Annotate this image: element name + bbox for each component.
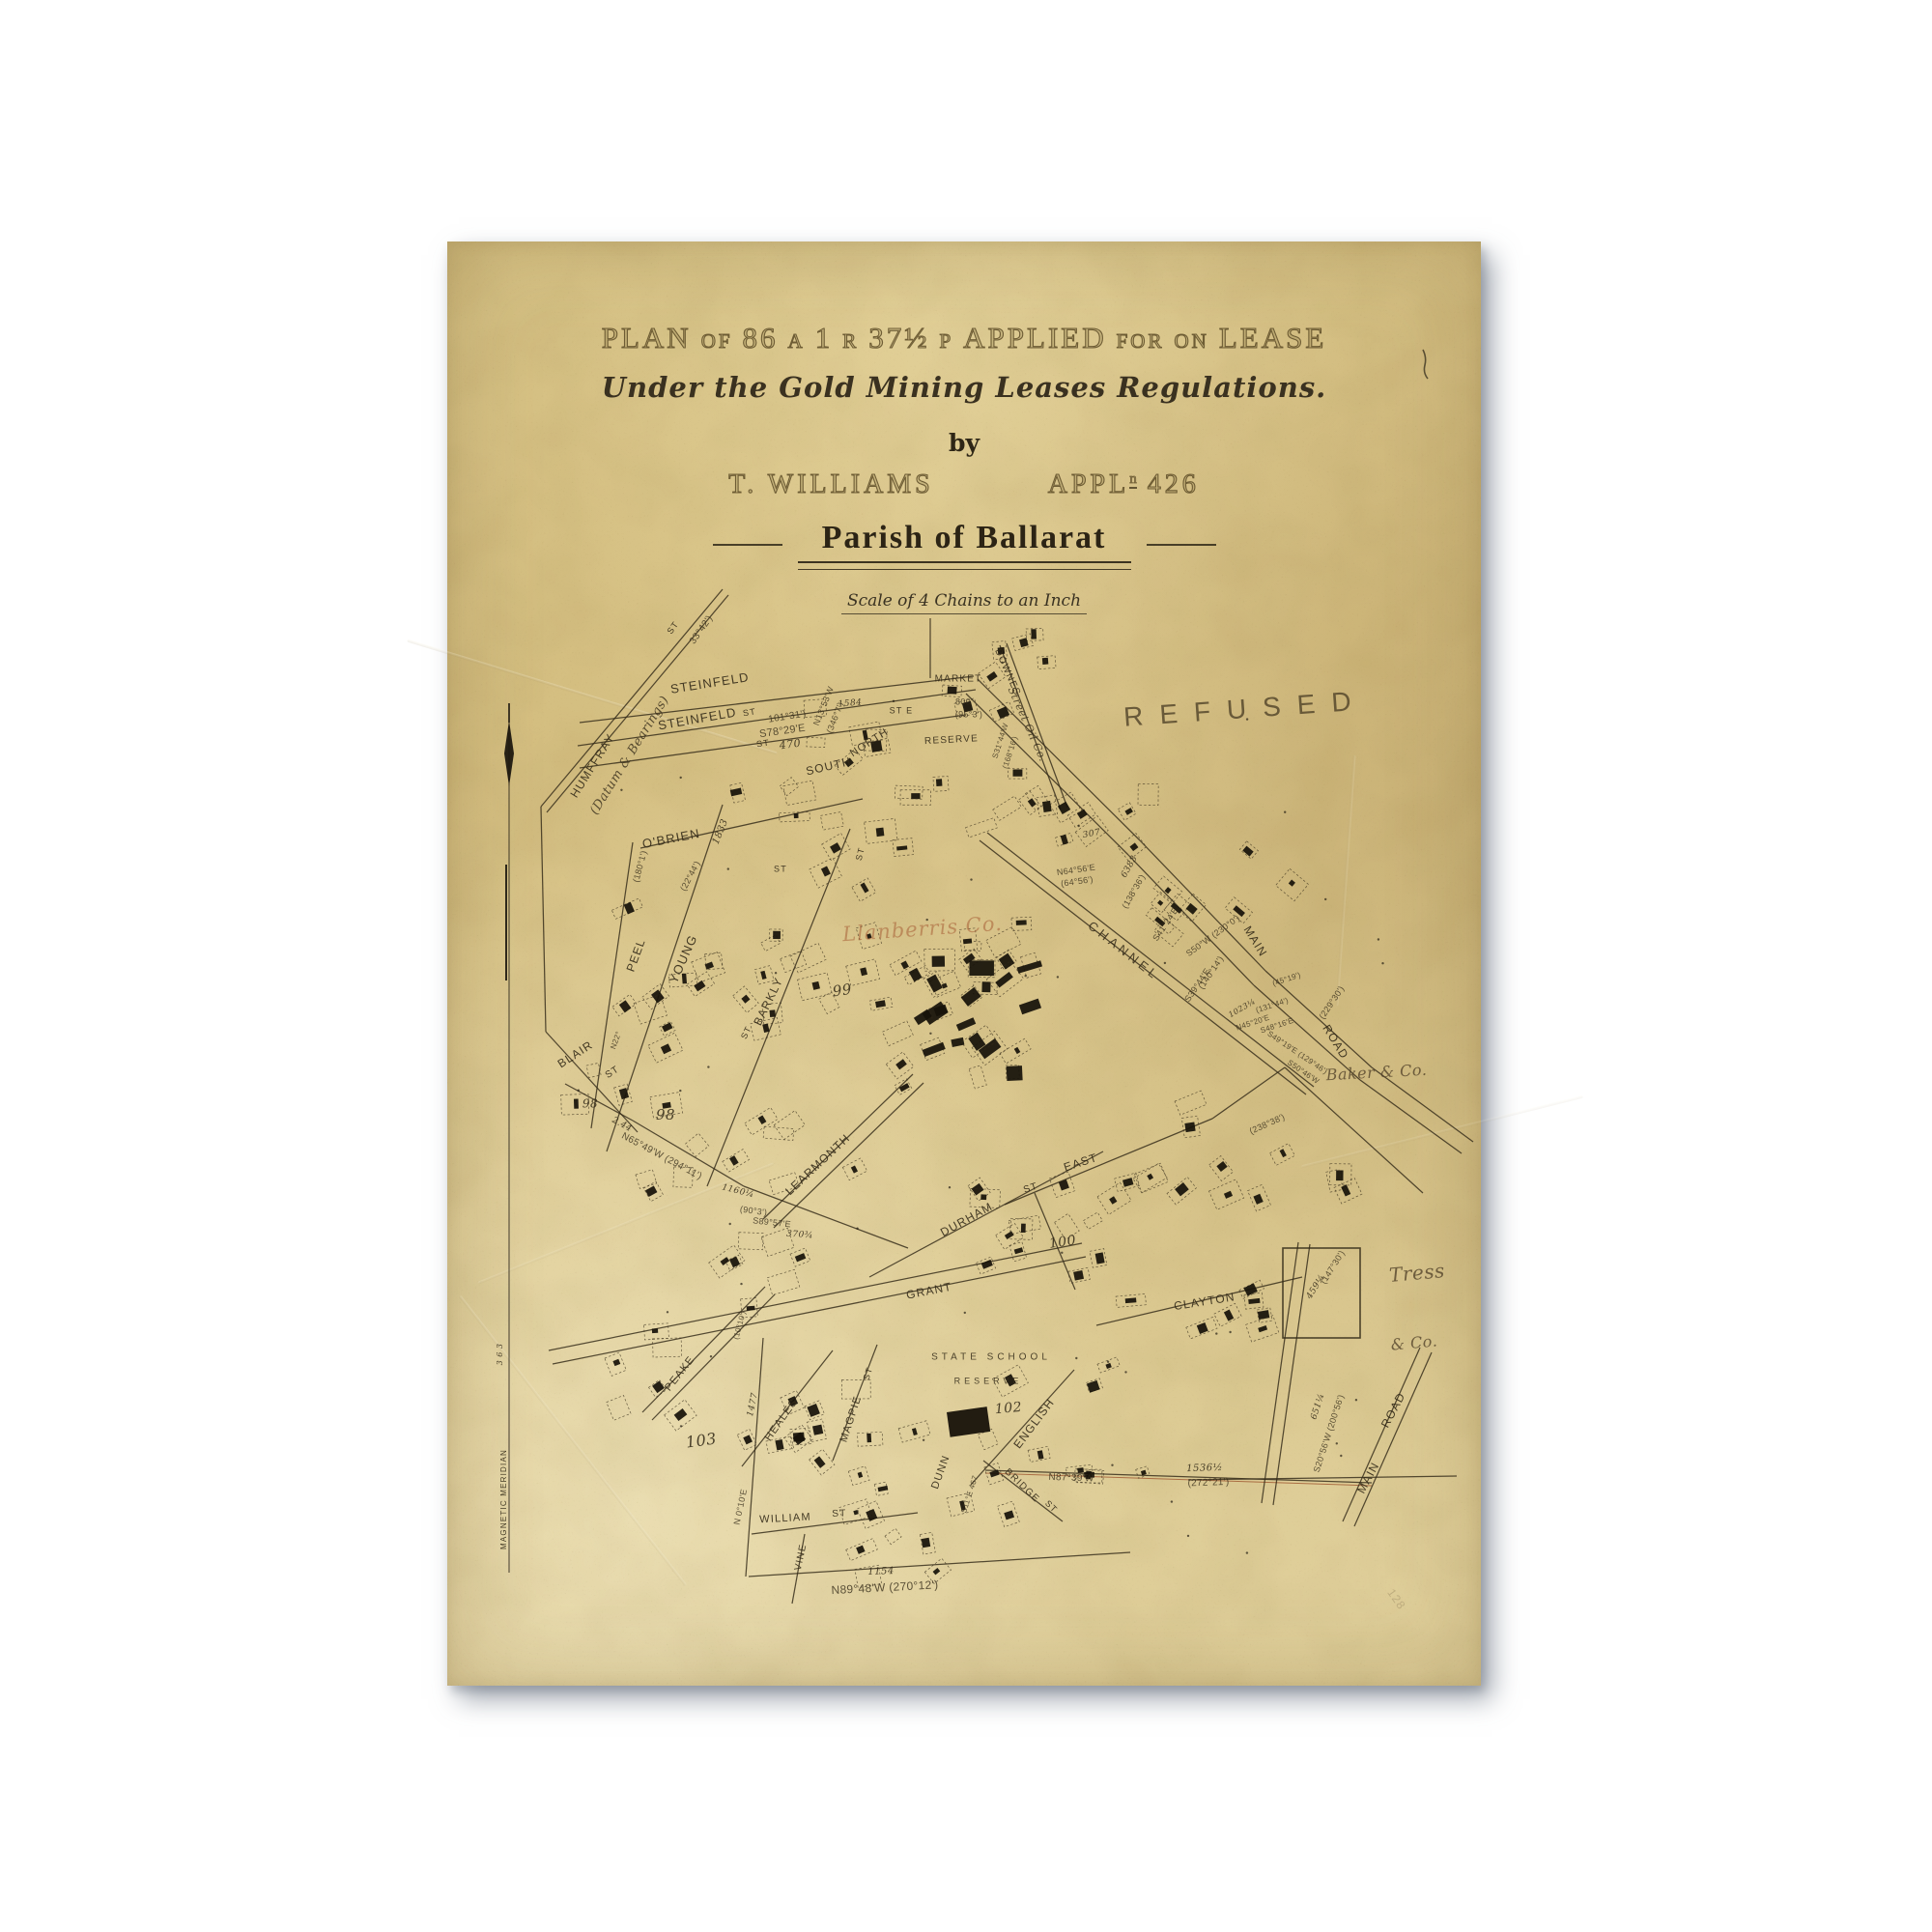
road-line — [1360, 1080, 1462, 1153]
building-block — [1028, 798, 1037, 807]
parcel — [886, 1052, 914, 1079]
parish-title: Parish of Ballarat — [822, 520, 1107, 556]
map-label: GRANT — [905, 1280, 953, 1302]
building-block — [1280, 1149, 1287, 1157]
map-label: NORTH — [848, 726, 891, 760]
parcel — [709, 1245, 745, 1278]
parcel — [921, 1037, 948, 1060]
title-word: OF — [701, 329, 733, 353]
title-word: R — [842, 329, 859, 353]
building-block — [867, 1434, 871, 1443]
building-block — [900, 960, 908, 969]
page-background: HUMFFRAY(Datum & Bearings)ST33°42')STEIN… — [0, 0, 1932, 1932]
map-label: 307 — [1082, 828, 1101, 840]
title-word: P — [939, 329, 953, 353]
parcel — [648, 1033, 683, 1063]
parcel — [998, 1501, 1020, 1527]
parcel-outline — [586, 1063, 601, 1077]
building-block — [729, 1155, 739, 1166]
building-block — [1129, 842, 1138, 851]
parcel — [846, 1539, 878, 1561]
building-block — [1042, 658, 1048, 665]
map-label: S89°57'E — [753, 1215, 792, 1229]
building-block — [922, 1538, 931, 1548]
parcel-outline — [783, 781, 816, 806]
building-block — [1005, 1231, 1014, 1239]
shaft-dot — [1107, 1361, 1109, 1363]
parcel — [737, 1429, 756, 1450]
map-label: PEEL — [624, 937, 648, 974]
shaft-dot — [856, 1228, 858, 1230]
applicant-name: T. WILLIAMS — [728, 469, 934, 500]
building-block — [1014, 1047, 1021, 1054]
map-label: (95°3') — [955, 709, 982, 719]
building-block — [1019, 638, 1029, 647]
applicant-row: T. WILLIAMS APPLn 426 — [447, 469, 1481, 500]
parcel — [780, 778, 798, 796]
parcel-outline — [965, 818, 997, 838]
parcel — [1097, 1182, 1131, 1214]
parcel — [965, 818, 997, 838]
parcel — [1009, 1242, 1027, 1262]
building-block — [730, 788, 742, 797]
building-block — [812, 1425, 823, 1435]
shaft-dot — [1187, 1535, 1189, 1537]
plan-subtitle: Under the Gold Mining Leases Regulations… — [447, 371, 1481, 404]
shaft-dot — [893, 700, 895, 702]
parcel — [942, 685, 962, 697]
parcel-outline — [738, 1233, 763, 1250]
building-block — [856, 1546, 865, 1554]
reserve-rectangle — [1283, 1248, 1360, 1338]
building-block — [969, 960, 994, 976]
by-label: by — [447, 429, 1481, 457]
parcel — [1026, 628, 1043, 640]
building-block — [1242, 846, 1253, 857]
shaft-dot — [1111, 1464, 1113, 1466]
building-block — [961, 987, 981, 1007]
map-label: (180°1') — [631, 849, 648, 883]
map-label: 128 — [1384, 1586, 1408, 1612]
application-sup: n — [1129, 471, 1137, 489]
parcel — [729, 782, 746, 803]
parcel — [1014, 952, 1044, 980]
map-label: 1536½ — [1186, 1463, 1223, 1474]
map-label: MAGPIE — [838, 1394, 864, 1443]
parcel — [1114, 1173, 1139, 1191]
road-line — [553, 1257, 1086, 1364]
building-block — [1019, 999, 1041, 1015]
parcel-outline — [1138, 783, 1158, 805]
parcel-outline — [767, 1269, 800, 1294]
map-label: 1584 — [838, 697, 863, 709]
map-label: 98 — [582, 1097, 598, 1111]
title-word: 86 — [743, 321, 779, 355]
parcel — [924, 949, 955, 971]
title-word: PLAN — [602, 321, 692, 355]
parcel — [883, 1021, 914, 1046]
shaft-dot — [923, 1439, 924, 1441]
road-line — [1140, 840, 1265, 971]
parcel — [648, 1379, 666, 1397]
building-block — [923, 1042, 946, 1057]
road-line — [1273, 1244, 1310, 1505]
map-label: (229°30') — [1317, 984, 1346, 1021]
parcel — [969, 1065, 986, 1089]
building-block — [743, 1435, 753, 1444]
shaft-dot — [1164, 962, 1166, 964]
parcel — [1118, 803, 1136, 820]
parcel — [885, 1528, 901, 1544]
building-block — [812, 981, 820, 990]
shaft-dot — [578, 1090, 580, 1092]
building-block — [662, 1022, 673, 1032]
map-label: STEINFELD — [669, 669, 751, 696]
road-line — [1343, 1348, 1420, 1521]
shaft-dot — [707, 1065, 709, 1067]
parish-underline — [798, 561, 1131, 570]
map-label: ST — [742, 706, 756, 718]
building-block — [814, 1456, 826, 1467]
map-label: STATE SCHOOL — [931, 1352, 1051, 1363]
parish-row: Parish of Ballarat — [447, 520, 1481, 570]
building-block — [896, 845, 907, 850]
map-label: VINE — [793, 1543, 810, 1572]
parcel — [898, 1421, 930, 1442]
building-block — [794, 813, 799, 818]
map-label: Baker & Co. — [1324, 1061, 1428, 1085]
map-canvas: HUMFFRAY(Datum & Bearings)ST33°42')STEIN… — [447, 241, 1481, 1686]
map-label: Tress — [1388, 1259, 1446, 1287]
map-label: ROAD — [1378, 1390, 1408, 1430]
parcel — [1012, 634, 1034, 651]
map-label: RESERVE — [954, 1376, 1023, 1385]
parcel — [1083, 1212, 1102, 1230]
building-block — [1243, 1283, 1257, 1295]
parcel-outline — [780, 778, 798, 796]
parcel-outline — [636, 1170, 657, 1189]
parcel — [1244, 1293, 1264, 1309]
building-block — [652, 1328, 658, 1333]
building-block — [1122, 1178, 1133, 1187]
parcel — [857, 1432, 882, 1446]
road-line — [707, 829, 850, 1186]
parcel — [1270, 1144, 1295, 1166]
building-block — [574, 1099, 579, 1109]
parcel — [968, 1178, 990, 1201]
map-label: ST E — [890, 705, 914, 715]
building-block — [741, 995, 750, 1004]
building-block — [1124, 808, 1133, 815]
parcel — [805, 1401, 824, 1420]
parcel — [1037, 795, 1058, 816]
building-block — [624, 902, 635, 915]
shaft-dot — [740, 1283, 742, 1285]
parcel — [745, 1107, 778, 1134]
parcel — [822, 834, 850, 861]
building-block — [1105, 1363, 1111, 1369]
building-block — [995, 972, 1013, 988]
building-block — [807, 1404, 820, 1417]
parcel — [807, 737, 825, 747]
shaft-dot — [1324, 898, 1326, 900]
parcel — [1067, 803, 1095, 828]
parcel — [733, 986, 759, 1013]
map-label: ST — [1022, 1181, 1039, 1196]
shaft-dot — [1061, 1252, 1063, 1254]
parcel — [874, 1482, 889, 1495]
shaft-dot — [964, 1312, 966, 1314]
parcel-outline — [1083, 1212, 1102, 1230]
parcel — [1086, 1378, 1102, 1393]
parcel — [1116, 1293, 1146, 1307]
shaft-dot — [775, 972, 777, 974]
map-label: 1154 — [867, 1566, 895, 1577]
parish-column: Parish of Ballarat — [798, 520, 1131, 570]
parcel — [1209, 1156, 1234, 1181]
building-block — [1248, 1298, 1260, 1304]
map-label: CHANNEL — [1086, 919, 1163, 983]
parcel — [687, 972, 714, 997]
building-block — [1157, 900, 1163, 906]
map-label: (238°38') — [1248, 1112, 1287, 1136]
parcel — [1181, 1116, 1200, 1138]
building-block — [951, 1037, 964, 1047]
shaft-dot — [679, 1090, 681, 1092]
map-label: & Co. — [1390, 1331, 1438, 1353]
shaft-dot — [1025, 975, 1027, 977]
shaft-dot — [1340, 1455, 1342, 1457]
building-block — [1186, 903, 1198, 915]
parcel — [848, 1466, 869, 1486]
parcel — [586, 1063, 601, 1077]
map-label: MARKET — [935, 674, 982, 685]
shaft-dot — [710, 1355, 712, 1357]
parcel — [1257, 1308, 1272, 1323]
right-dash — [1147, 544, 1216, 546]
building-block — [1014, 1247, 1024, 1254]
parcel — [783, 781, 816, 806]
left-dash — [713, 544, 782, 546]
building-block — [1336, 1170, 1344, 1180]
shaft-dot — [949, 1186, 951, 1188]
parcel — [1136, 1466, 1150, 1478]
building-block — [980, 1194, 986, 1200]
building-block — [909, 968, 923, 982]
map-label: S11°E 467 — [959, 1474, 980, 1514]
road-line — [774, 1083, 923, 1228]
map-label: 100 — [1048, 1233, 1077, 1252]
shaft-dot — [1039, 1451, 1041, 1453]
parcel — [1006, 1065, 1023, 1081]
parcel — [612, 994, 637, 1016]
map-label: 470 — [778, 737, 802, 753]
building-block — [1184, 1122, 1195, 1132]
building-block — [721, 1257, 730, 1265]
building-block — [1341, 1184, 1350, 1196]
parcel — [810, 1449, 835, 1475]
title-word: 1 — [815, 321, 834, 355]
map-label: (64°56') — [1061, 874, 1094, 889]
building-block — [619, 1000, 632, 1012]
parcel — [1010, 1218, 1033, 1239]
road-line — [985, 1473, 1372, 1486]
building-block — [972, 1183, 984, 1196]
parcel — [956, 1017, 976, 1031]
parcel — [920, 1532, 935, 1554]
map-label: S50°W (230°0') — [1184, 913, 1241, 958]
parcel — [1151, 893, 1171, 913]
title-word: APPLIED — [963, 321, 1106, 355]
parcel — [1186, 1317, 1217, 1338]
map-label: ST — [832, 1508, 847, 1520]
shaft-dot — [1057, 976, 1059, 978]
shaft-dot — [1378, 938, 1379, 940]
parcel — [1239, 1280, 1264, 1298]
parcel — [1011, 917, 1032, 930]
building-block — [932, 956, 945, 967]
parcel — [784, 1425, 813, 1453]
building-block — [795, 1253, 806, 1262]
building-block — [1197, 1322, 1208, 1334]
building-block — [1253, 1194, 1263, 1205]
building-block — [936, 779, 942, 786]
building-block — [1087, 1380, 1100, 1393]
building-block — [1077, 810, 1088, 819]
building-block — [1007, 1065, 1023, 1081]
building-block — [851, 1166, 858, 1174]
map-label: WILLIAM — [759, 1512, 811, 1526]
map-label: S41°24'E — [1151, 905, 1180, 943]
building-block — [1109, 1196, 1117, 1204]
scale-note: Scale of 4 Chains to an Inch — [447, 591, 1481, 611]
map-label: MAGNETIC MERIDIAN — [499, 1449, 508, 1549]
shaft-dot — [680, 1425, 682, 1427]
parcel — [1019, 791, 1041, 814]
parcel — [1090, 1249, 1107, 1268]
shaft-dot — [1381, 962, 1383, 964]
shaft-dot — [929, 1033, 931, 1035]
building-block — [1141, 1470, 1147, 1476]
parcel — [1019, 999, 1041, 1015]
building-block — [860, 967, 867, 976]
parcel-outline — [763, 1126, 794, 1140]
parcel — [738, 1233, 763, 1250]
parcel — [976, 1257, 995, 1274]
map-label: ST — [604, 1064, 622, 1080]
shaft-dot — [667, 1311, 668, 1313]
building-block — [860, 883, 868, 894]
parcel — [790, 1248, 810, 1266]
road-line — [1285, 1067, 1423, 1193]
map-label: N87°39'W — [1048, 1472, 1094, 1485]
building-block — [1042, 801, 1052, 812]
parcel — [869, 997, 893, 1010]
building-block — [911, 793, 920, 799]
parcel — [960, 985, 982, 1008]
map-label: BLAIR — [555, 1037, 596, 1070]
parcel-outline — [883, 1021, 914, 1046]
map-label: ST — [862, 1366, 875, 1381]
map-label: ST — [854, 846, 867, 862]
building-block — [1058, 802, 1070, 814]
parcel — [1276, 868, 1309, 901]
shaft-dot — [1284, 811, 1286, 813]
building-block — [1289, 880, 1295, 887]
shaft-dot — [970, 878, 972, 880]
map-label: 1160¼ — [721, 1182, 755, 1201]
building-block — [1224, 1191, 1233, 1199]
building-block — [1258, 1325, 1267, 1332]
map-label: N65°49'W (294°11') — [619, 1131, 703, 1182]
shaft-dot — [1229, 1331, 1231, 1333]
building-block — [1125, 1297, 1137, 1303]
road-line — [1354, 1352, 1432, 1526]
title-word: A — [788, 329, 806, 353]
map-label: 98 — [656, 1106, 675, 1123]
building-block — [1031, 629, 1037, 639]
parcel — [1246, 1316, 1279, 1342]
title-word: FOR — [1117, 329, 1165, 353]
road-line — [549, 1243, 1082, 1350]
parcel — [996, 950, 1016, 970]
map-label: 1023¼ — [1227, 997, 1257, 1019]
building-block — [1258, 1310, 1269, 1320]
building-block — [1073, 1270, 1084, 1281]
map-label: O'BRIEN — [641, 826, 701, 851]
map-label: 800' — [955, 696, 973, 706]
parcel — [644, 1323, 669, 1340]
building-block — [963, 938, 972, 944]
parcel — [1037, 656, 1056, 669]
building-block — [956, 1017, 976, 1031]
parcel — [933, 776, 949, 791]
parcel — [852, 878, 876, 901]
road-line — [541, 589, 723, 807]
shaft-dot — [729, 1223, 731, 1225]
map-label: CLAYTON — [1173, 1290, 1236, 1313]
building-block — [747, 1306, 755, 1311]
shaft-dot — [1336, 1442, 1338, 1444]
map-label: Llanberris Co. — [840, 912, 1003, 947]
parcel — [723, 1150, 750, 1173]
parcel — [993, 796, 1021, 820]
map-label: PEAKE — [663, 1353, 697, 1393]
parcel — [611, 898, 642, 920]
building-block — [674, 1408, 688, 1421]
building-block — [758, 1115, 767, 1124]
parcel — [1028, 1446, 1050, 1462]
building-block — [875, 1000, 886, 1008]
road-line — [966, 694, 1128, 855]
parcel — [790, 943, 826, 973]
plan-title: PLANOF86A1R37½PAPPLIEDFORONLEASE — [447, 321, 1481, 355]
shaft-dot — [1171, 1500, 1173, 1502]
map-label: ST — [665, 619, 680, 636]
building-block — [729, 1257, 740, 1268]
building-block — [775, 1439, 783, 1450]
building-block — [999, 953, 1015, 970]
map-label: 102 — [994, 1400, 1023, 1417]
parcel — [1167, 1177, 1196, 1205]
road-line — [1262, 1242, 1298, 1503]
map-label: DUNN — [929, 1454, 952, 1491]
parcel — [1179, 894, 1206, 922]
parcel-outline — [969, 1065, 986, 1089]
parcel — [951, 1037, 964, 1047]
parcel — [1334, 1179, 1362, 1204]
building-block — [933, 1568, 941, 1575]
